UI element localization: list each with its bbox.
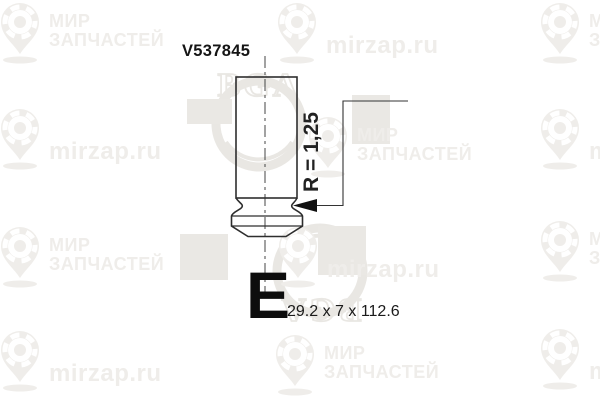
valve-seat-lines (232, 216, 303, 226)
product-image: BGA BGA МИРЗАПЧАСТЕЙ (0, 0, 600, 400)
valve-head (232, 198, 303, 237)
radius-dimension-label: R = 1,25 (300, 112, 324, 192)
dimension-leader-line (316, 101, 408, 206)
valve-dimensions: 29.2 x 7 x 112.6 (287, 303, 400, 321)
valve-stem (236, 77, 297, 198)
part-number: V537845 (182, 42, 250, 61)
valve-technical-drawing (0, 0, 600, 400)
valve-type-letter: E (246, 262, 290, 328)
